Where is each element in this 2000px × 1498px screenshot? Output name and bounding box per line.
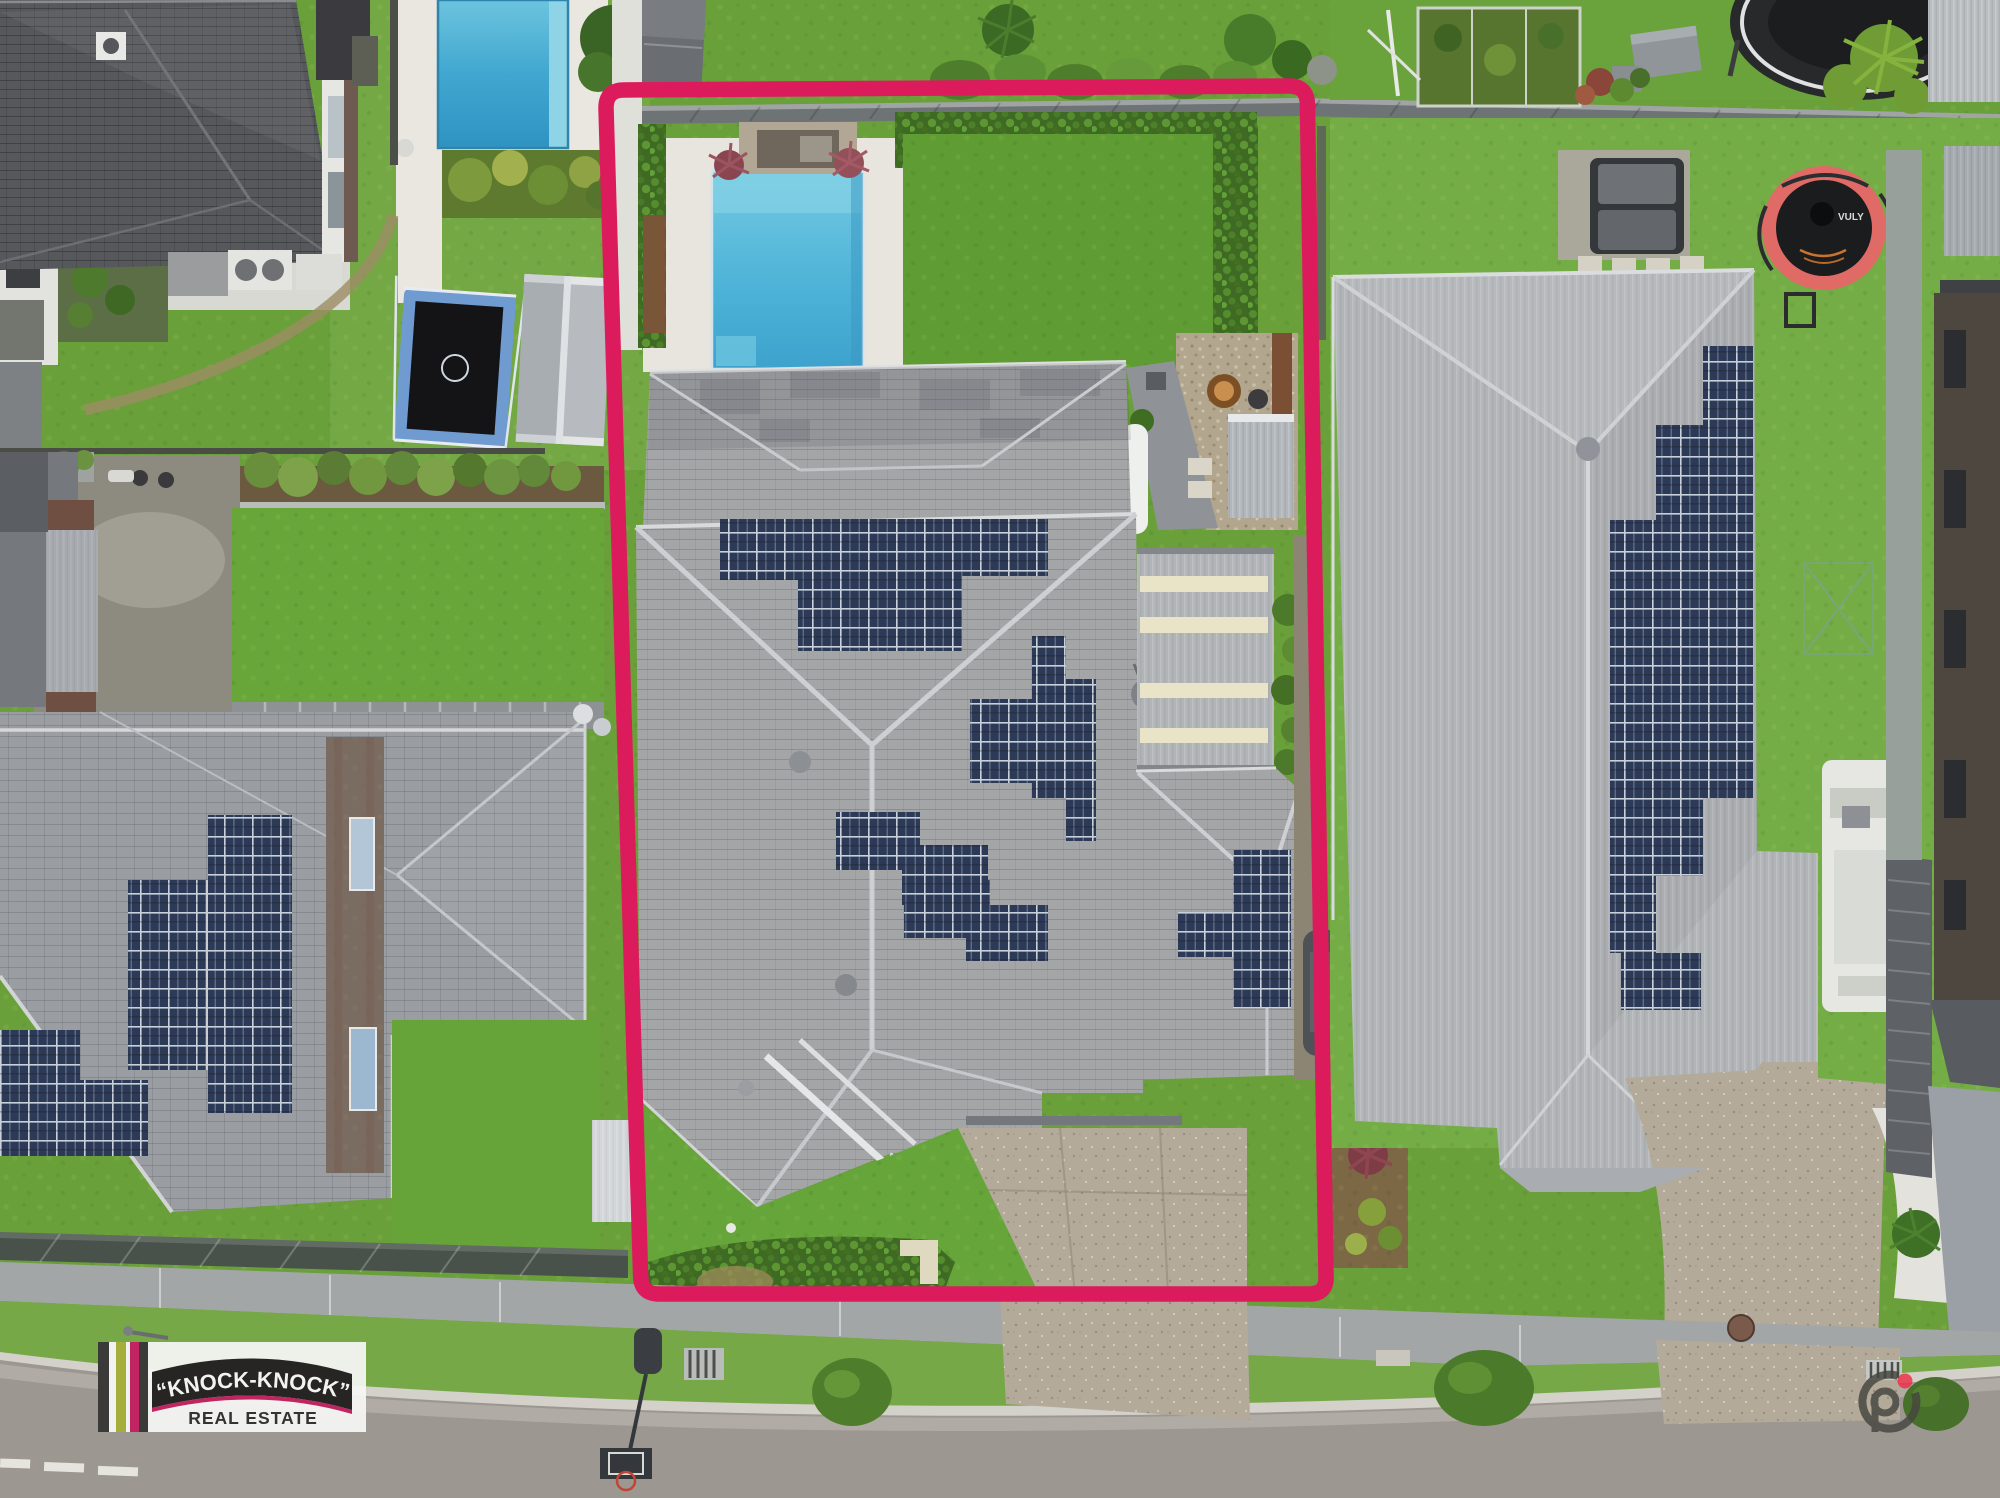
- svg-text:VULY: VULY: [1838, 212, 1864, 223]
- svg-text:REAL ESTATE: REAL ESTATE: [188, 1408, 318, 1428]
